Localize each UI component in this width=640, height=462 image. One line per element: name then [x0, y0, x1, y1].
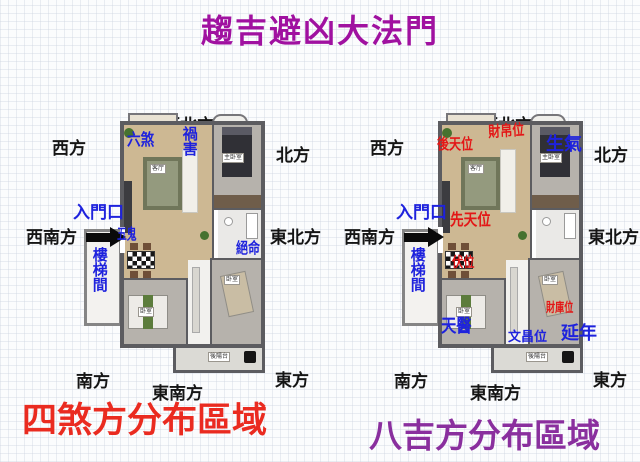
sofa	[500, 149, 516, 213]
chair	[143, 271, 151, 278]
room-label-living: 客厅	[468, 164, 484, 174]
direction-label-south: 南方	[394, 367, 428, 392]
bathtub	[246, 213, 258, 239]
annotation-entrance: 入門口	[396, 204, 447, 222]
annotation-wenchangwei: 文昌位	[508, 330, 547, 344]
chair	[448, 271, 456, 278]
room-label-bedroom: 卧室	[224, 275, 240, 285]
annotation-houtianwei: 後天位	[437, 137, 473, 153]
room-label-back-balcony: 後陽台	[526, 352, 548, 362]
direction-label-northeast: 東北方	[588, 223, 639, 248]
direction-label-south: 南方	[76, 367, 110, 392]
master-bed-pillows	[222, 127, 252, 135]
annotation-fuwei: 伏位	[452, 255, 474, 270]
feng-shui-diagram: 趨吉避凶大法門 西方 西北方 北方 西南方 東北方 南方 東南方 東方 後陽台 …	[0, 0, 640, 462]
washer-icon	[562, 351, 574, 363]
direction-label-east: 東方	[593, 366, 627, 391]
annotation-stairwell: 樓梯間	[409, 247, 425, 292]
chair	[448, 243, 456, 250]
chair	[461, 243, 469, 250]
direction-label-southwest: 西南方	[26, 223, 77, 248]
direction-label-west: 西方	[370, 134, 404, 159]
annotation-jueming: 絕命	[236, 241, 260, 257]
entrance-arrow-icon	[86, 233, 110, 242]
annotation-liusha: 六煞	[127, 133, 154, 150]
chair	[130, 271, 138, 278]
direction-label-east: 東方	[275, 366, 309, 391]
annotation-yannian: 延年	[561, 324, 597, 343]
annotation-wugui: 五鬼	[117, 227, 137, 243]
direction-label-north: 北方	[594, 141, 628, 166]
annotation-huohai: 禍害	[181, 126, 197, 156]
panel-four-evils: 西方 西北方 北方 西南方 東北方 南方 東南方 東方 後陽台 客厅	[0, 0, 322, 462]
direction-label-southwest: 西南方	[344, 223, 395, 248]
entrance-arrow-icon	[428, 227, 444, 247]
room-label-bedroom: 卧室	[138, 307, 154, 317]
room-label-living: 客厅	[150, 164, 166, 174]
direction-label-northeast: 東北方	[270, 223, 321, 248]
washer-icon	[244, 351, 256, 363]
caption-eight-auspicious: 八吉方分布區域	[369, 409, 600, 457]
annotation-xiantianwei: 先天位	[450, 213, 491, 230]
panel-eight-auspicious: 西方 西北方 北方 西南方 東北方 南方 東南方 東方 後陽台 客厅	[318, 0, 640, 462]
wall	[530, 258, 579, 260]
caption-four-evils: 四煞方分布區域	[22, 392, 267, 443]
chair	[461, 271, 469, 278]
plant-icon	[200, 231, 209, 240]
room-label-bedroom: 卧室	[542, 275, 558, 285]
dining-table	[127, 251, 155, 269]
back-balcony: 後陽台	[173, 346, 265, 373]
annotation-entrance: 入門口	[73, 204, 124, 222]
direction-label-west: 西方	[52, 134, 86, 159]
chair	[130, 243, 138, 250]
wall	[212, 258, 261, 260]
plant-icon	[518, 231, 527, 240]
bathtub	[564, 213, 576, 239]
closet	[192, 267, 200, 333]
annotation-shengqi: 生氣	[546, 135, 582, 154]
annotation-tianyi: 天醫	[441, 317, 472, 336]
annotation-caibowei: 財帛位	[488, 123, 525, 141]
room-label-back-balcony: 後陽台	[208, 352, 230, 362]
wardrobe	[214, 195, 261, 208]
toilet	[224, 217, 233, 226]
back-balcony: 後陽台	[491, 346, 583, 373]
entrance-arrow-icon	[404, 233, 428, 242]
chair	[143, 243, 151, 250]
wardrobe	[532, 195, 579, 208]
toilet	[542, 217, 551, 226]
room-label-master: 主卧室	[540, 153, 562, 163]
closet	[510, 267, 518, 333]
direction-label-southeast: 東南方	[470, 379, 521, 404]
room-label-master: 主卧室	[222, 153, 244, 163]
annotation-stairwell: 樓梯間	[91, 247, 107, 292]
sofa	[182, 149, 198, 213]
annotation-caikuwei: 財庫位	[546, 301, 573, 315]
direction-label-north: 北方	[276, 141, 310, 166]
